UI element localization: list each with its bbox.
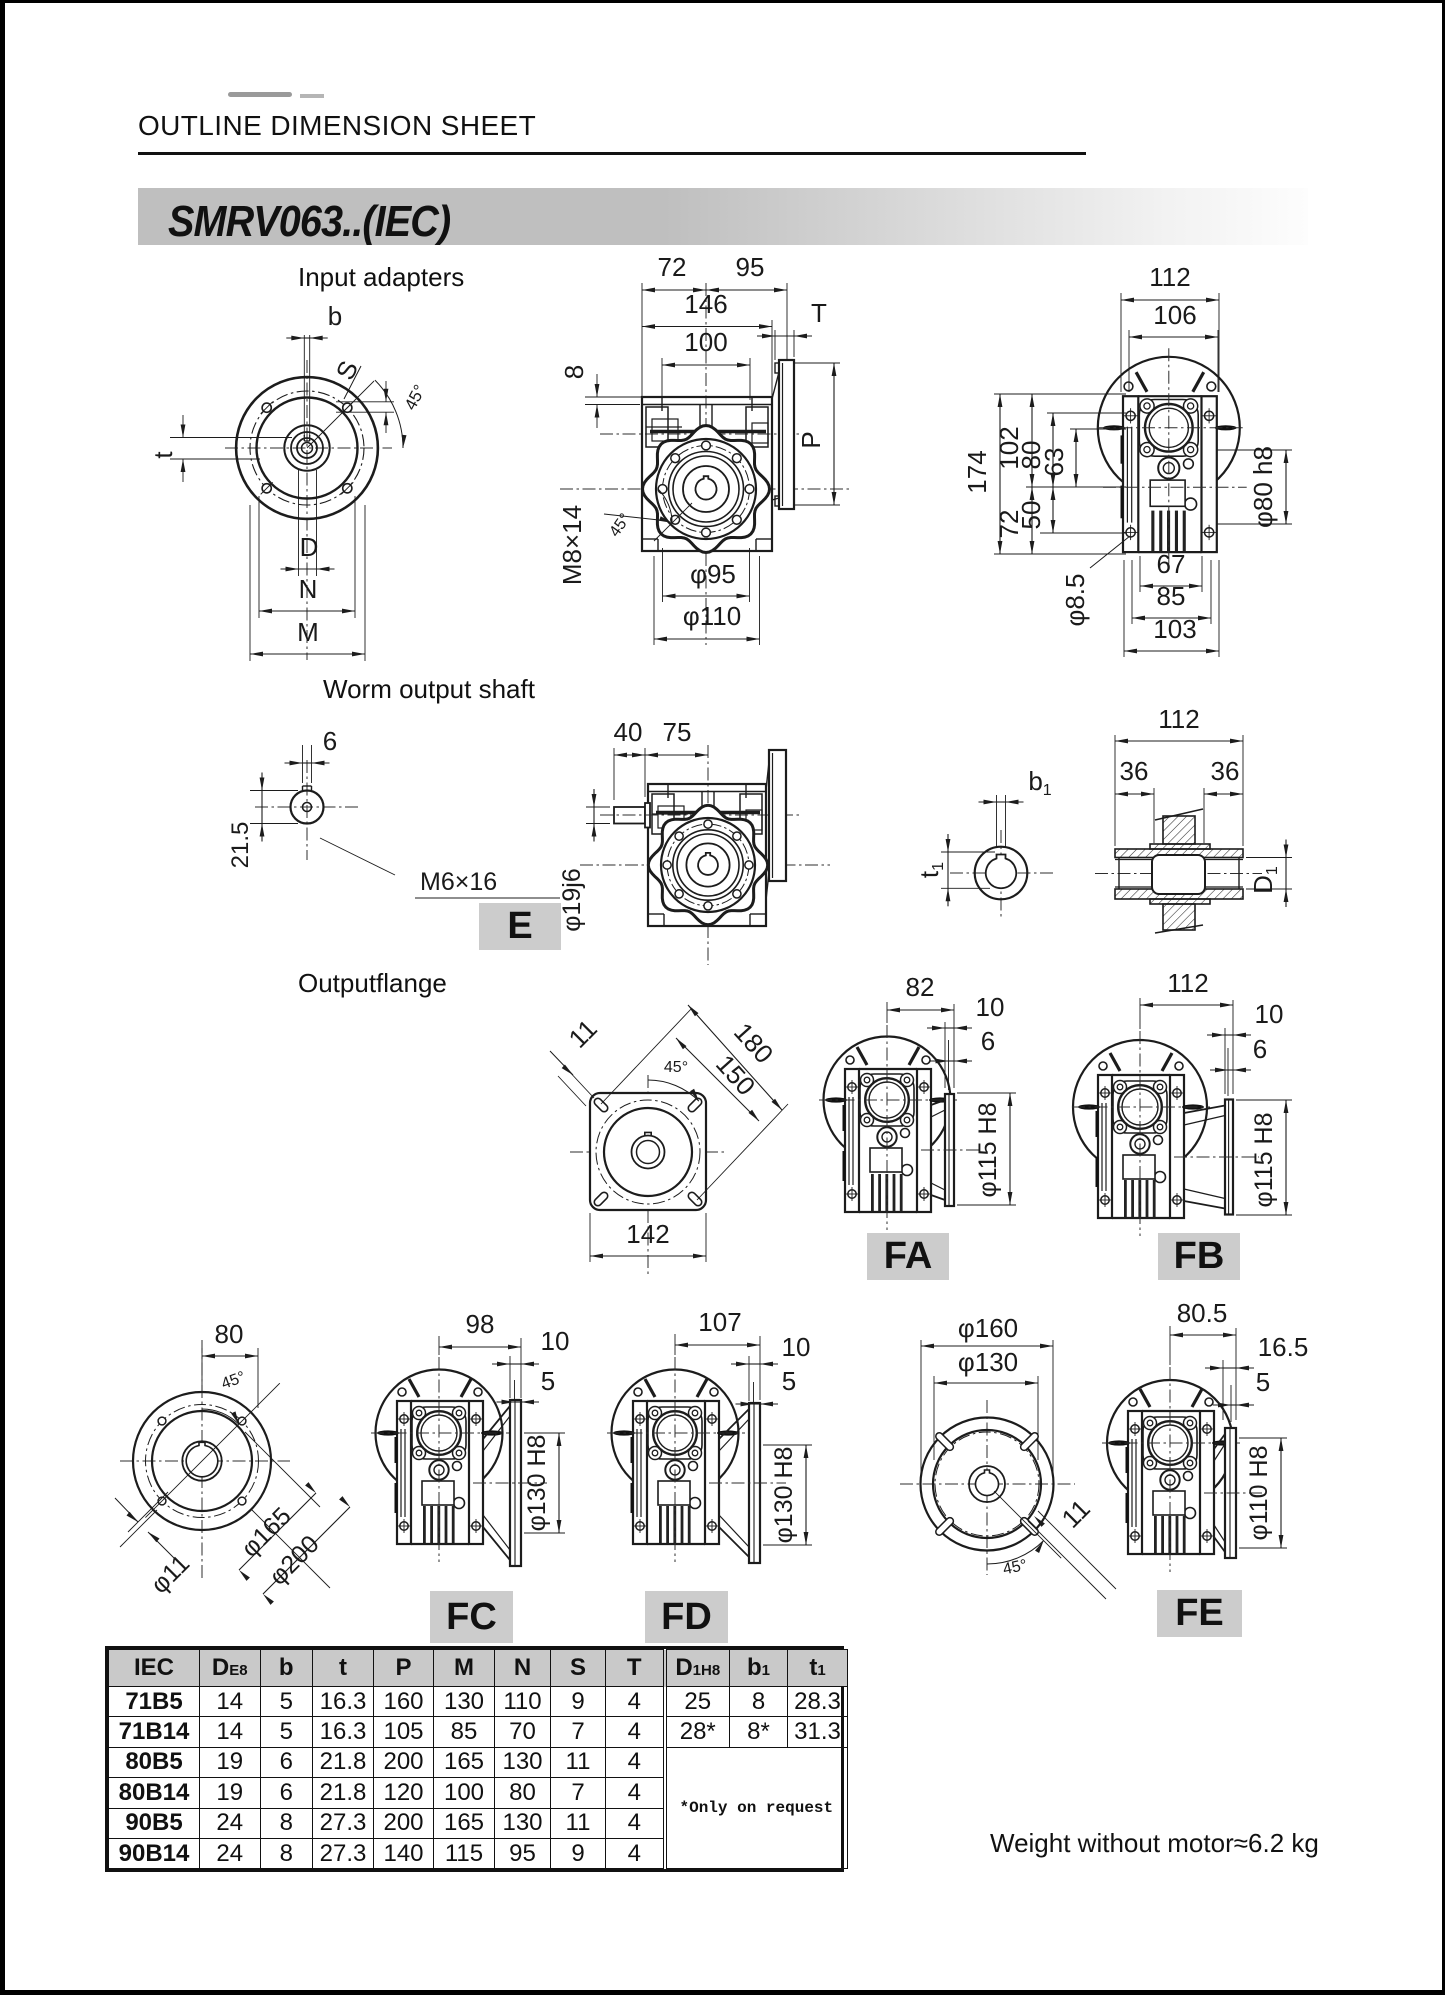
svg-text:T: T — [811, 298, 827, 328]
svg-text:10: 10 — [782, 1332, 811, 1362]
svg-text:6: 6 — [323, 726, 337, 756]
svg-text:107: 107 — [698, 1307, 741, 1337]
svg-text:11: 11 — [562, 1013, 602, 1053]
svg-text:174: 174 — [962, 450, 992, 493]
svg-text:63: 63 — [1039, 448, 1069, 477]
svg-text:10: 10 — [541, 1326, 570, 1356]
svg-text:8: 8 — [559, 365, 589, 379]
svg-text:45°: 45° — [401, 382, 430, 414]
svg-text:t1: t1 — [914, 862, 947, 878]
svg-text:φ95: φ95 — [690, 559, 736, 589]
svg-text:t: t — [148, 451, 178, 459]
svg-text:45°: 45° — [1001, 1557, 1028, 1579]
svg-text:6: 6 — [981, 1026, 995, 1056]
svg-text:N: N — [299, 574, 318, 604]
svg-text:b1: b1 — [1028, 766, 1051, 799]
svg-text:50: 50 — [1016, 501, 1046, 530]
svg-text:11: 11 — [1055, 1493, 1095, 1533]
svg-text:45°: 45° — [219, 1369, 248, 1393]
svg-text:103: 103 — [1153, 614, 1196, 644]
svg-text:b: b — [328, 301, 342, 331]
svg-text:D1: D1 — [1248, 866, 1281, 894]
svg-text:φ8.5: φ8.5 — [1060, 573, 1090, 626]
svg-text:φ19j6: φ19j6 — [558, 868, 586, 931]
svg-text:80: 80 — [215, 1319, 244, 1349]
svg-text:φ130 H8: φ130 H8 — [523, 1435, 551, 1532]
svg-text:75: 75 — [663, 717, 692, 747]
svg-text:φ130: φ130 — [958, 1347, 1018, 1377]
svg-text:112: 112 — [1158, 704, 1199, 734]
svg-text:100: 100 — [684, 327, 727, 357]
svg-text:φ110: φ110 — [683, 601, 741, 631]
svg-text:φ115 H8: φ115 H8 — [1250, 1113, 1278, 1208]
svg-text:95: 95 — [736, 252, 765, 282]
svg-text:φ130 H8: φ130 H8 — [770, 1447, 798, 1544]
svg-text:80.5: 80.5 — [1177, 1298, 1228, 1328]
svg-text:36: 36 — [1211, 756, 1240, 786]
svg-text:M8×14: M8×14 — [557, 505, 587, 585]
svg-text:D: D — [300, 532, 319, 562]
svg-text:5: 5 — [541, 1366, 555, 1396]
svg-text:21.5: 21.5 — [227, 822, 254, 869]
svg-text:82: 82 — [906, 972, 935, 1002]
svg-text:M6×16: M6×16 — [420, 868, 497, 896]
svg-text:S: S — [330, 356, 365, 384]
svg-text:φ11: φ11 — [146, 1550, 196, 1600]
svg-text:112: 112 — [1149, 262, 1190, 292]
svg-text:85: 85 — [1157, 581, 1186, 611]
svg-text:10: 10 — [976, 992, 1005, 1022]
svg-text:98: 98 — [466, 1309, 495, 1339]
svg-text:6: 6 — [1253, 1034, 1267, 1064]
svg-text:10: 10 — [1255, 999, 1284, 1029]
svg-text:φ115 H8: φ115 H8 — [974, 1103, 1002, 1198]
svg-text:36: 36 — [1120, 756, 1149, 786]
svg-text:M: M — [297, 617, 319, 647]
svg-text:72: 72 — [658, 252, 687, 282]
svg-text:5: 5 — [782, 1366, 796, 1396]
svg-text:φ110 H8: φ110 H8 — [1245, 1446, 1273, 1541]
svg-text:142: 142 — [626, 1219, 669, 1249]
svg-text:φ80 h8: φ80 h8 — [1248, 446, 1278, 528]
svg-text:5: 5 — [1256, 1367, 1270, 1397]
svg-text:φ160: φ160 — [958, 1313, 1018, 1343]
svg-text:146: 146 — [684, 289, 727, 319]
svg-text:16.5: 16.5 — [1258, 1332, 1309, 1362]
svg-text:40: 40 — [614, 717, 643, 747]
svg-text:112: 112 — [1167, 968, 1208, 998]
svg-text:67: 67 — [1157, 549, 1186, 579]
svg-text:P: P — [796, 431, 826, 448]
svg-text:45°: 45° — [664, 1059, 688, 1076]
svg-text:106: 106 — [1153, 300, 1196, 330]
